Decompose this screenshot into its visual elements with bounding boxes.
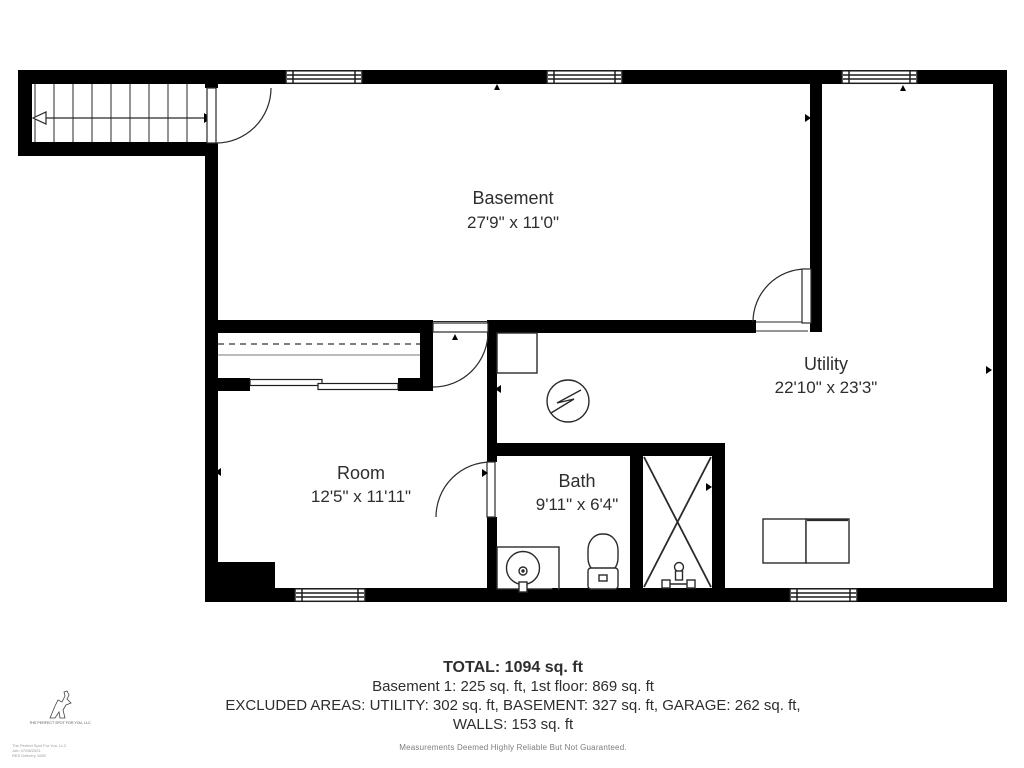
room-dims-utility: 22'10" x 23'3" [775, 378, 878, 397]
wall-closet-stub-left [205, 378, 250, 391]
wall-stair-bottom [18, 142, 210, 156]
area-summary: TOTAL: 1094 sq. ft Basement 1: 225 sq. f… [0, 658, 1024, 752]
wall-left-upper [205, 70, 218, 88]
window-bottom-2 [790, 589, 857, 602]
room-label-bath: Bath [558, 471, 595, 491]
room-label-utility: Utility [804, 354, 848, 374]
wall-room-bath-upper [487, 320, 497, 462]
room-labels: Basement 27'9" x 11'0" Utility 22'10" x … [311, 188, 877, 514]
furnace-icon [547, 380, 589, 422]
room-dims-room: 12'5" x 11'11" [311, 487, 411, 506]
summary-walls: WALLS: 153 sq. ft [0, 715, 1024, 734]
marker-right-icon [986, 366, 992, 374]
shower-valve-icon [662, 563, 695, 589]
laundry-tub-icon [763, 519, 849, 563]
flue-box [497, 333, 537, 373]
room-label-room: Room [337, 463, 385, 483]
room-label-basement: Basement [472, 188, 553, 208]
summary-disclaimer: Measurements Deemed Highly Reliable But … [0, 743, 1024, 752]
wall-closet-stub-right [398, 378, 433, 391]
wall-right [993, 70, 1007, 602]
sliding-door-panel-1 [250, 380, 322, 386]
shower [644, 457, 711, 588]
wall-shower-right [712, 443, 725, 602]
floor-plan-page: Basement 27'9" x 11'0" Utility 22'10" x … [0, 0, 1024, 768]
stairs-direction-arrow [33, 112, 212, 124]
sliding-door-panel-2 [318, 384, 398, 390]
summary-excluded: EXCLUDED AREAS: UTILITY: 302 sq. ft, BAS… [0, 696, 1024, 715]
vanity-sink-icon [497, 547, 559, 592]
door-bath [436, 462, 495, 517]
wall-basement-right [810, 84, 822, 332]
window-top-2 [547, 71, 622, 84]
bath-fixtures [497, 457, 711, 592]
wall-shower-left [630, 443, 643, 602]
marker-right-icon [706, 483, 712, 491]
marker-up-icon [900, 85, 906, 91]
wall-markers [215, 84, 992, 594]
stairs [35, 84, 187, 142]
wall-shower-top [630, 443, 725, 456]
wall-room-jog [205, 562, 275, 588]
wall-basement-south-b [488, 320, 756, 333]
wall-left-lower [205, 143, 218, 602]
marker-up-icon [494, 84, 500, 90]
door-corridor [433, 322, 488, 388]
window-bottom-1 [295, 589, 365, 602]
door-utility [753, 269, 811, 331]
room-dims-bath: 9'11" x 6'4" [536, 495, 619, 514]
door-stairs [207, 88, 271, 143]
summary-floors: Basement 1: 225 sq. ft, 1st floor: 869 s… [0, 677, 1024, 696]
wall-bath-top [497, 443, 630, 456]
summary-total: TOTAL: 1094 sq. ft [0, 658, 1024, 677]
marker-up-icon [452, 334, 458, 340]
floor-plan-svg: Basement 27'9" x 11'0" Utility 22'10" x … [0, 0, 1024, 768]
window-top-1 [286, 71, 362, 84]
wall-room-bath-lower [487, 517, 497, 602]
fine-print-line: RES Delivery 1080 [12, 753, 47, 758]
window-top-3 [842, 71, 917, 84]
wall-basement-south-a [205, 320, 433, 333]
toilet-icon [588, 534, 618, 589]
room-dims-basement: 27'9" x 11'0" [467, 213, 559, 232]
